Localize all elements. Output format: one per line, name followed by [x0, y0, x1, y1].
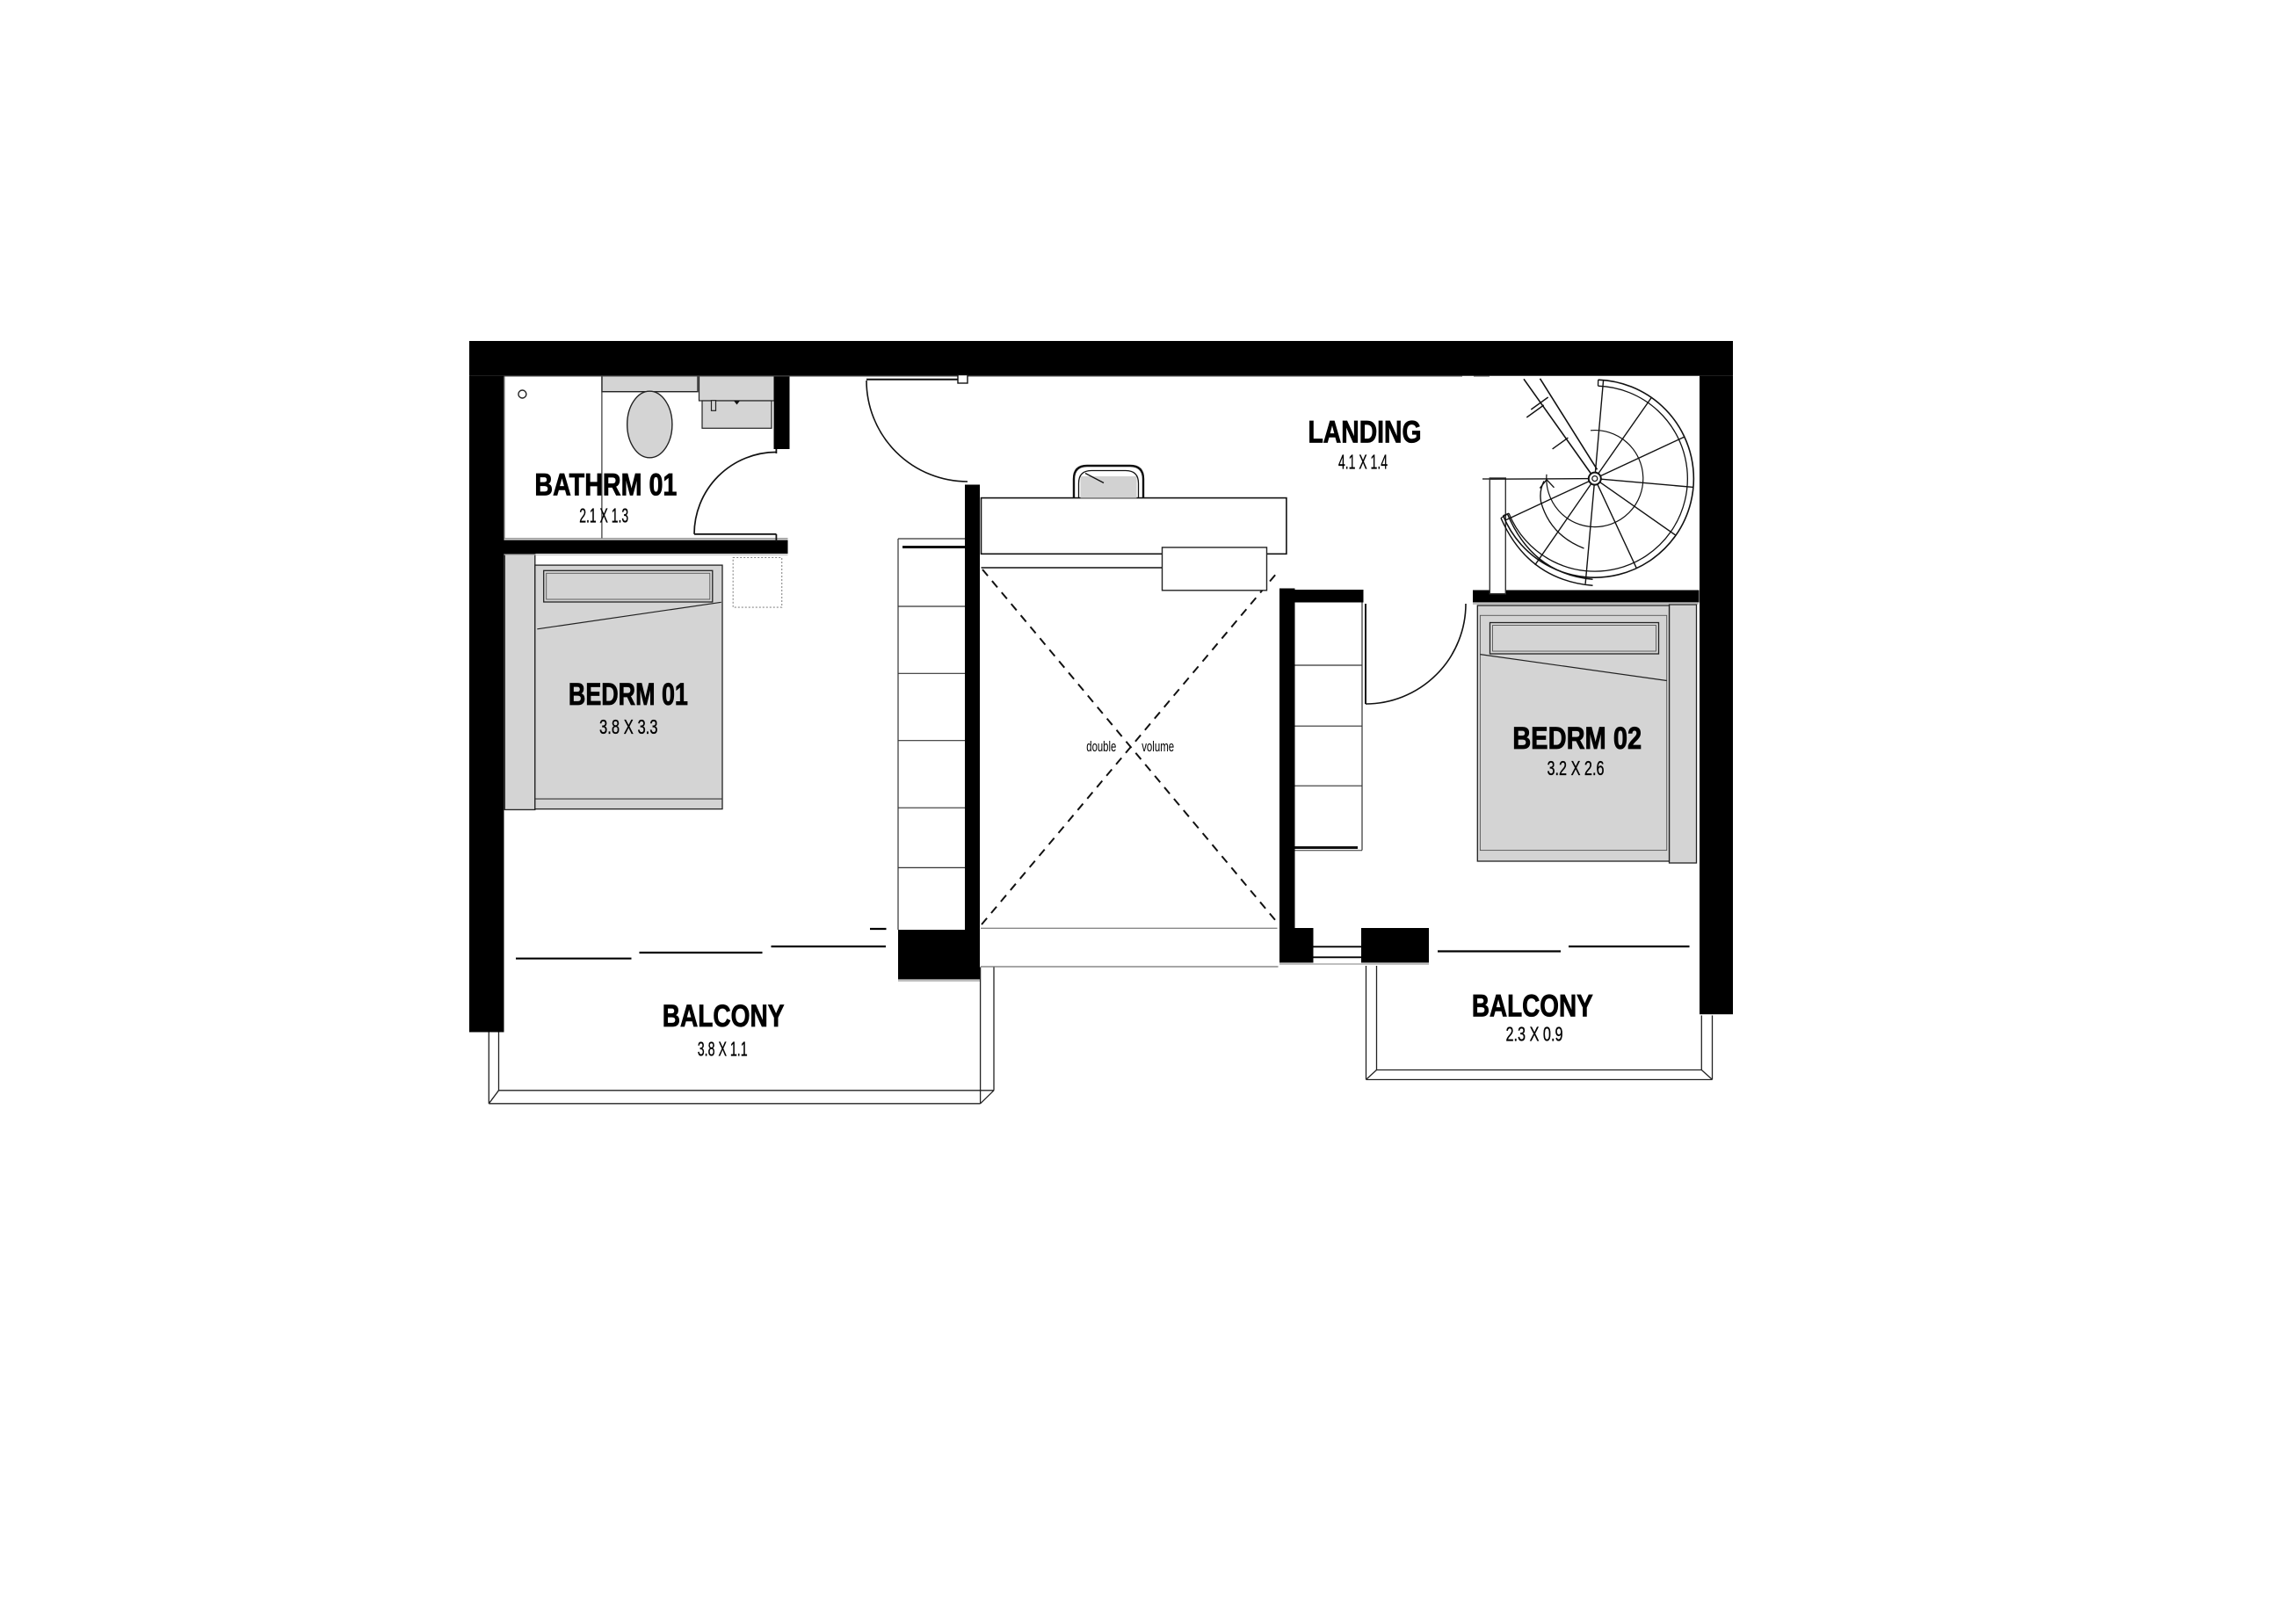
- svg-text:BALCONY: BALCONY: [663, 999, 785, 1033]
- svg-text:2.1 X 1.3: 2.1 X 1.3: [579, 504, 628, 526]
- svg-text:BEDRM 02: BEDRM 02: [1512, 721, 1642, 756]
- svg-text:3.8 X 3.3: 3.8 X 3.3: [599, 715, 658, 738]
- svg-text:4.1 X 1.4: 4.1 X 1.4: [1338, 451, 1388, 474]
- svg-text:3.8 X 1.1: 3.8 X 1.1: [698, 1037, 748, 1060]
- svg-text:LANDING: LANDING: [1308, 416, 1422, 450]
- svg-text:volume: volume: [1142, 738, 1174, 755]
- svg-text:2.3 X 0.9: 2.3 X 0.9: [1506, 1022, 1563, 1045]
- svg-text:3.2 X 2.6: 3.2 X 2.6: [1548, 757, 1605, 779]
- svg-text:BALCONY: BALCONY: [1472, 989, 1593, 1023]
- svg-text:BATHRM 01: BATHRM 01: [534, 468, 677, 502]
- svg-text:BEDRM 01: BEDRM 01: [569, 678, 688, 712]
- svg-text:double: double: [1086, 738, 1116, 755]
